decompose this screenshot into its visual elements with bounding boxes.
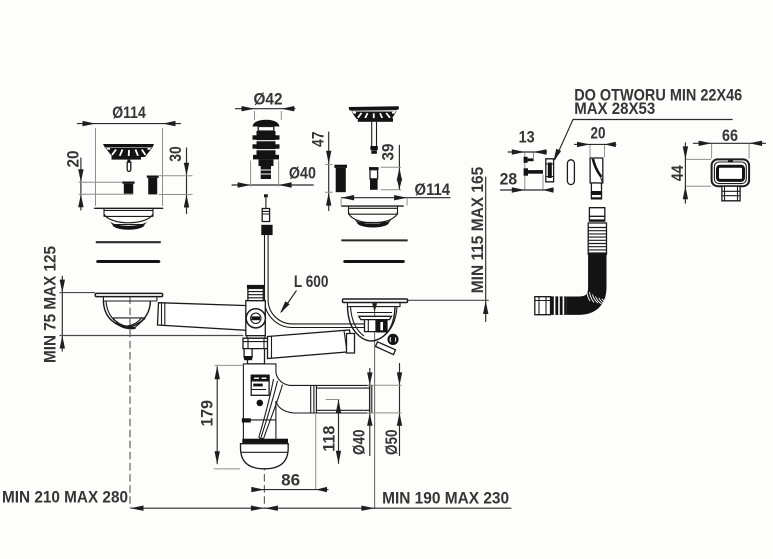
svg-text:44: 44	[668, 165, 687, 181]
svg-text:39: 39	[379, 144, 398, 161]
svg-text:47: 47	[309, 132, 328, 148]
svg-text:Ø50: Ø50	[382, 429, 401, 455]
svg-text:86: 86	[281, 471, 300, 490]
svg-text:118: 118	[319, 426, 338, 452]
svg-text:MIN 210 MAX 280: MIN 210 MAX 280	[2, 487, 128, 506]
svg-text:66: 66	[722, 126, 738, 145]
svg-text:MIN 75 MAX 125: MIN 75 MAX 125	[41, 246, 60, 363]
svg-text:MIN 190 MAX 230: MIN 190 MAX 230	[382, 488, 509, 507]
svg-text:L 600: L 600	[294, 272, 329, 291]
svg-text:28: 28	[500, 170, 518, 189]
svg-text:Ø114: Ø114	[112, 103, 146, 122]
svg-text:30: 30	[166, 146, 185, 162]
svg-text:Ø40: Ø40	[289, 164, 316, 183]
svg-text:Ø42: Ø42	[254, 90, 283, 109]
svg-text:Ø114: Ø114	[415, 180, 451, 199]
svg-text:179: 179	[198, 400, 217, 427]
svg-text:MIN 115 MAX 165: MIN 115 MAX 165	[468, 167, 487, 294]
svg-text:20: 20	[64, 151, 83, 168]
svg-text:MAX 28X53: MAX 28X53	[574, 99, 655, 118]
svg-text:Ø40: Ø40	[350, 429, 369, 455]
svg-text:20: 20	[591, 123, 606, 142]
svg-text:13: 13	[519, 128, 535, 147]
